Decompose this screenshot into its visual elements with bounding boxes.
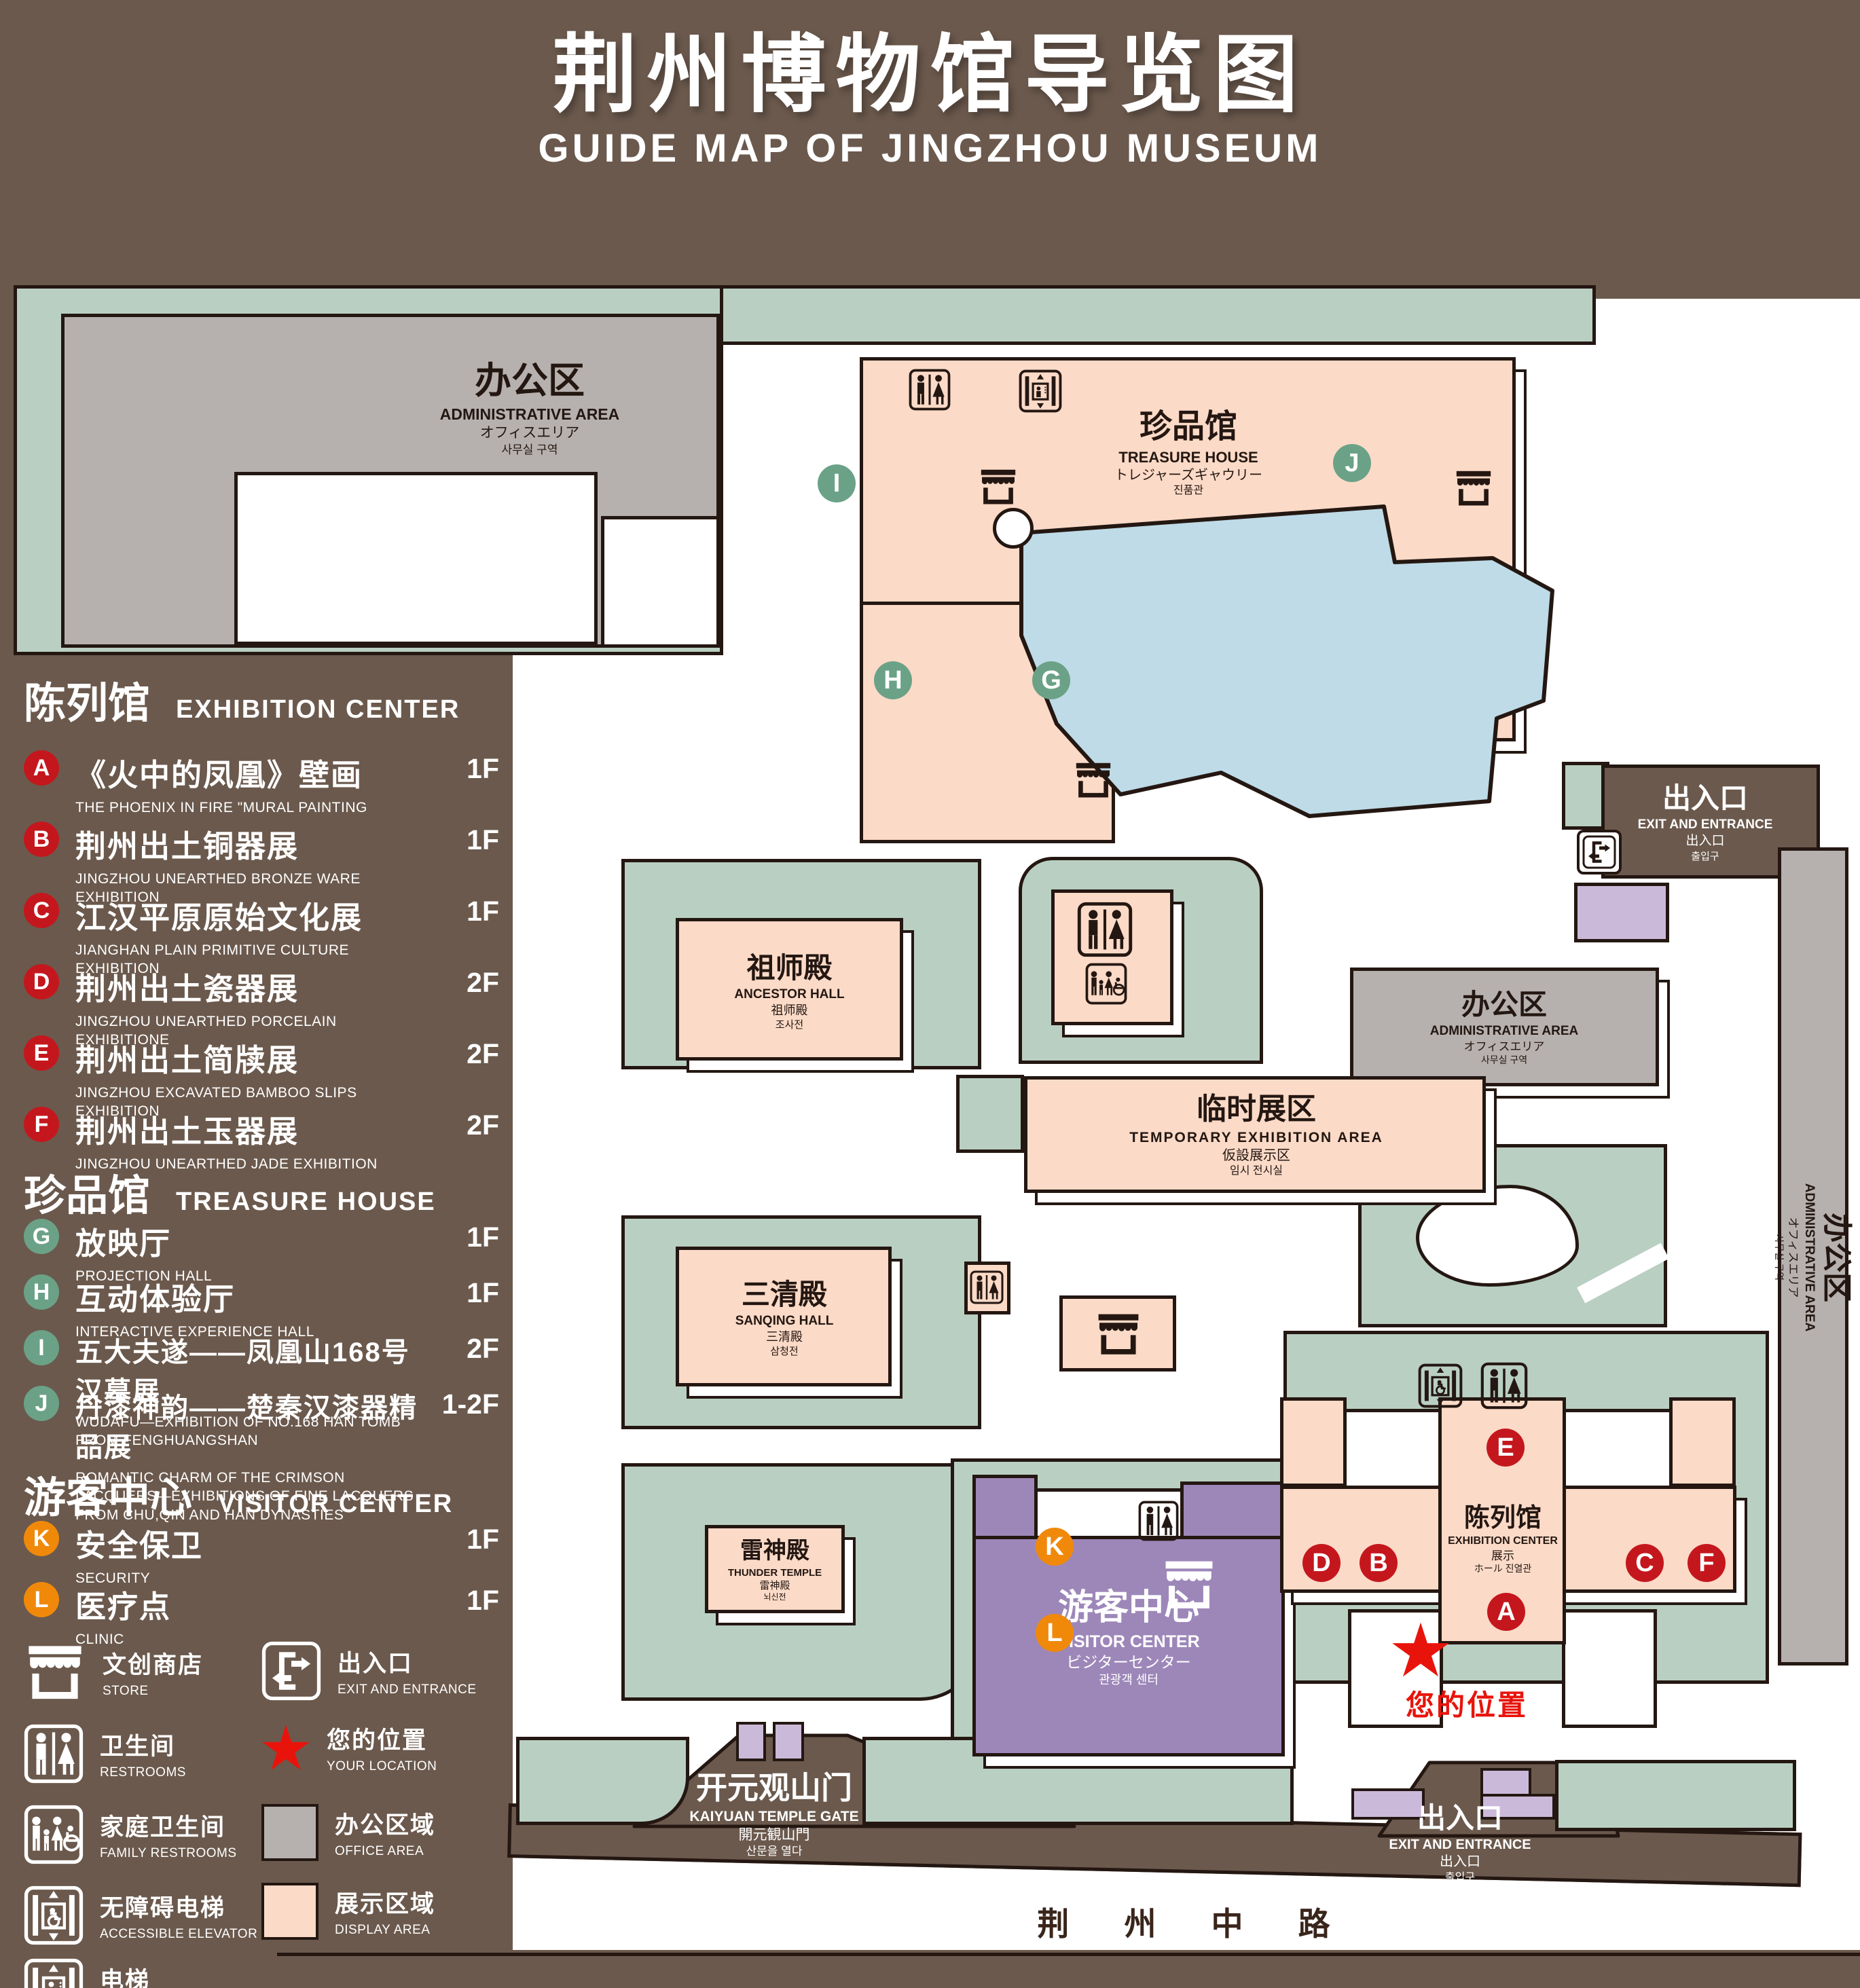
thunder-temple-label: 雷神殿 THUNDER TEMPLE 雷神殿 뇌신전 — [708, 1529, 842, 1610]
marker-b: B — [1360, 1544, 1398, 1582]
legend-symbol-accessible-elevator: 无障碍电梯ACCESSIBLE ELEVATOR — [24, 1883, 258, 1948]
marker-i: I — [818, 464, 856, 502]
sanqing-hall-label: 三清殿 SANQING HALL 三清殿 삼청전 — [679, 1253, 890, 1382]
restroom-icon — [24, 1721, 84, 1786]
guide-map-poster: 荆州博物馆导览图 GUIDE MAP OF JINGZHOU MUSEUM 办公… — [0, 0, 1860, 1988]
legend-item-k: K 安全保卫SECURITY 1F — [24, 1521, 499, 1587]
exit-icon — [1577, 830, 1622, 875]
legend-symbol-your-location: 您的位置YOUR LOCATION — [261, 1721, 496, 1774]
badge-i: I — [24, 1330, 59, 1365]
legend-section-exhibition-center: 陈列馆 EXHIBITION CENTER — [24, 669, 460, 730]
restroom-icon — [1138, 1499, 1179, 1543]
store-icon — [24, 1640, 86, 1705]
marker-h: H — [874, 661, 912, 699]
exit-icon — [261, 1640, 321, 1702]
legend-section-treasure-house: 珍品馆 TREASURE HOUSE — [24, 1161, 436, 1222]
page-subtitle: GUIDE MAP OF JINGZHOU MUSEUM — [0, 126, 1860, 171]
family-restroom-icon — [1085, 963, 1127, 1005]
legend-section-visitor-center: 游客中心 VISITOR CENTER — [24, 1463, 453, 1524]
accessible-elevator-icon — [24, 1883, 84, 1948]
kaiyuan-gate-label: 开元观山门 KAIYUAN TEMPLE GATE 開元観山門 산문을 열다 — [649, 1763, 900, 1864]
elevator-icon — [1019, 365, 1062, 417]
legend-item-l: L 医疗点CLINIC 1F — [24, 1582, 499, 1649]
legend-symbol-family-restroom: 家庭卫生间FAMILY RESTROOMS — [24, 1804, 258, 1865]
visitor-center-label: 游客中心 VISITOR CENTER ビジターセンター 관광객 센터 — [993, 1572, 1264, 1701]
elevator-icon — [24, 1955, 84, 1988]
badge-c: C — [24, 893, 59, 928]
bottom-strip — [277, 1953, 1860, 1988]
marker-e: E — [1487, 1429, 1525, 1467]
admin-courtyard — [601, 516, 720, 648]
badge-j: J — [24, 1386, 59, 1421]
page-title: 荆州博物馆导览图 — [0, 5, 1860, 128]
badge-e: E — [24, 1035, 59, 1071]
restroom-icon — [909, 367, 951, 413]
lake-island — [993, 508, 1034, 549]
badge-f: F — [24, 1107, 59, 1142]
ancestor-hall-label: 祖师殿 ANCESTOR HALL 祖师殿 조사전 — [679, 925, 900, 1057]
legend-symbol-restroom: 卫生间RESTROOMS — [24, 1721, 258, 1786]
admin-courtyard — [234, 472, 598, 645]
exhibition-center-tower — [1280, 1397, 1347, 1487]
legend-symbol-display-area: 展示区域DISPLAY AREA — [261, 1883, 496, 1940]
legend-symbol-exit: 出入口EXIT AND ENTRANCE — [261, 1640, 496, 1702]
admin-topleft-label: 办公区 ADMINISTRATIVE AREA オフィスエリア 사무실 구역 — [360, 352, 699, 464]
badge-g: G — [24, 1219, 59, 1254]
family-restroom-icon — [24, 1804, 84, 1865]
badge-k: K — [24, 1521, 59, 1556]
lawn-area — [956, 1075, 1024, 1153]
exit-entrance-top-label: 出入口 EXIT AND ENTRANCE 出入口 출입구 — [1608, 769, 1802, 875]
location-star-icon — [261, 1724, 310, 1771]
store-icon — [978, 464, 1019, 509]
gate-block — [736, 1722, 766, 1761]
accessible-elevator-icon — [1418, 1358, 1463, 1414]
store-icon — [1073, 758, 1114, 803]
exhibition-center-tower — [1669, 1397, 1736, 1487]
marker-j: J — [1333, 444, 1371, 482]
exit-entrance-bottom-label: 出入口 EXIT AND ENTRANCE 出入口 출입구 — [1348, 1790, 1572, 1895]
visitor-center-tower — [972, 1475, 1038, 1543]
legend-symbol-elevator: 电梯Elevator — [24, 1955, 258, 1988]
temporary-exhibition-label: 临时展区 TEMPORARY EXHIBITION AREA 仮設展示区 임시 … — [1039, 1084, 1474, 1185]
display-area-swatch — [261, 1883, 318, 1940]
marker-a: A — [1487, 1593, 1525, 1631]
legend-panel: 陈列馆 EXHIBITION CENTER A 《火中的凤凰》壁画THE PHO… — [24, 669, 503, 1988]
office-area-swatch — [261, 1804, 318, 1861]
road-name: 荆 州 中 路 — [964, 1898, 1426, 1945]
legend-item-a: A 《火中的凤凰》壁画THE PHOENIX IN FIRE "MURAL PA… — [24, 750, 499, 817]
badge-a: A — [24, 750, 59, 786]
store-icon — [1095, 1309, 1142, 1359]
marker-g: G — [1032, 661, 1070, 699]
restroom-icon — [1480, 1358, 1528, 1414]
treasure-house-label: 珍品馆 TREASURE HOUSE トレジャーズギャウリー 진품관 — [1059, 405, 1317, 500]
marker-l: L — [1036, 1614, 1074, 1652]
marker-k: K — [1036, 1528, 1074, 1566]
badge-b: B — [24, 822, 59, 857]
your-location-star-icon — [1391, 1621, 1451, 1678]
marker-f: F — [1688, 1544, 1726, 1582]
exhibition-court — [1562, 1609, 1657, 1728]
legend-symbol-office-area: 办公区域OFFICE AREA — [261, 1804, 496, 1861]
admin-strip-label: 办公区 ADMINISTRATIVE AREA オフィスエリア 사무실 구역 — [1781, 850, 1848, 1665]
badge-l: L — [24, 1582, 59, 1617]
marker-d: D — [1302, 1544, 1341, 1582]
visitor-center-tower — [1180, 1481, 1285, 1543]
badge-d: D — [24, 964, 59, 999]
your-location-label: 您的位置 — [1358, 1682, 1575, 1724]
gatehouse-block — [1574, 883, 1669, 942]
lawn-area — [1555, 1760, 1796, 1831]
restroom-icon — [970, 1268, 1004, 1306]
store-icon — [1453, 466, 1494, 511]
restroom-icon — [1077, 902, 1133, 957]
legend-symbol-store: 文创商店STORE — [24, 1640, 258, 1705]
badge-h: H — [24, 1274, 59, 1310]
marker-c: C — [1626, 1544, 1664, 1582]
admin-right-label: 办公区 ADMINISTRATIVE AREA オフィスエリア 사무실 구역 — [1358, 972, 1650, 1081]
gate-block — [773, 1722, 804, 1761]
exhibition-center-label: 陈列馆 EXHIBITION CENTER 展示 ホール 진열관 — [1441, 1484, 1565, 1593]
lawn-area — [720, 285, 1596, 345]
store-icon — [1161, 1555, 1217, 1615]
